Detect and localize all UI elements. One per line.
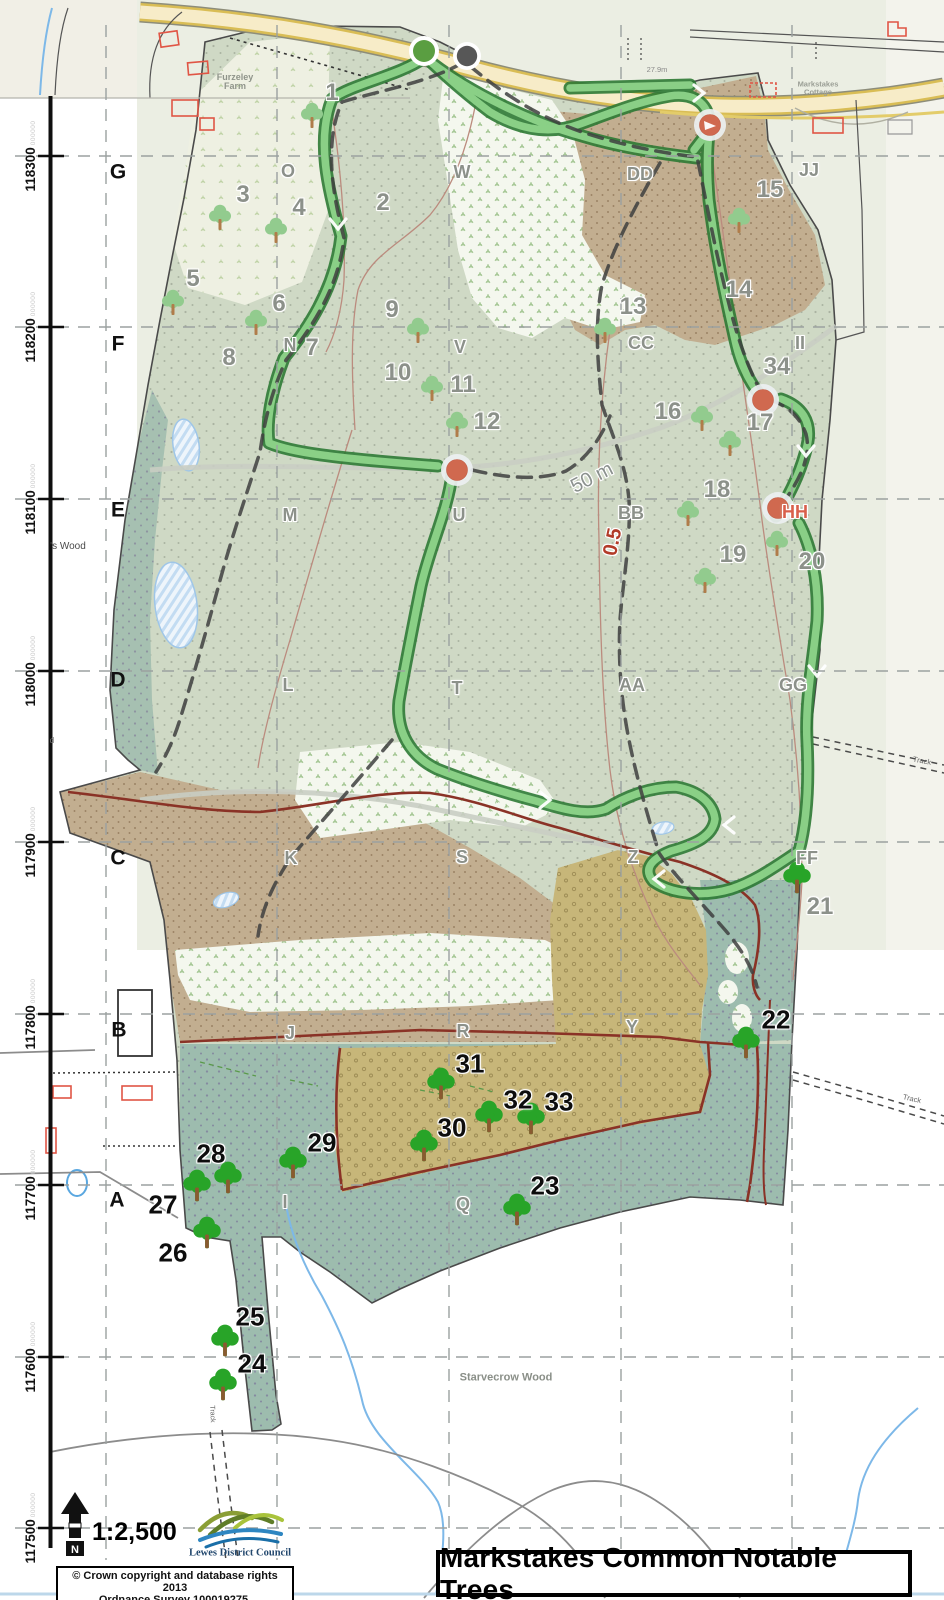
tree-number-6: 6 — [272, 292, 285, 316]
tree-number-27: 27 — [149, 1192, 178, 1219]
compartment-letter-II: II — [795, 334, 805, 352]
tree-number-15: 15 — [757, 178, 784, 202]
axis-label: 117900000000 — [22, 806, 40, 877]
compartment-letter-O: O — [281, 162, 295, 180]
tree-number-16: 16 — [655, 400, 682, 424]
tree-number-8: 8 — [222, 346, 235, 370]
map-title-text: Markstakes Common Notable Trees — [440, 1542, 908, 1600]
compartment-letter-V: V — [454, 338, 466, 356]
compartment-letter-GG: GG — [779, 676, 807, 694]
tree-number-26: 26 — [159, 1240, 188, 1267]
compartment-letter-K: K — [285, 849, 298, 867]
tree-number-31: 31 — [456, 1051, 485, 1078]
tree-number-34: 34 — [764, 355, 791, 379]
tree-number-12: 12 — [474, 410, 501, 434]
tree-number-10: 10 — [385, 361, 412, 385]
waypoint-marker — [694, 109, 726, 141]
axis-label: 118300000000 — [22, 120, 40, 191]
axis-label: 117600000000 — [22, 1321, 40, 1392]
tree-number-14: 14 — [726, 278, 753, 302]
svg-text:N: N — [71, 1544, 79, 1556]
tree-number-24: 24 — [238, 1351, 267, 1378]
compartment-letter-U: U — [453, 506, 466, 524]
map-title: Markstakes Common Notable Trees — [436, 1550, 912, 1597]
place-label-furzeley: FurzeleyFarm — [217, 73, 254, 91]
tree-number-1: 1 — [325, 81, 338, 105]
axis-label: 118000000000 — [22, 635, 40, 706]
compartment-letter-S: S — [456, 848, 468, 866]
compartment-letter-M: M — [283, 506, 298, 524]
tree-number-23: 23 — [531, 1173, 560, 1200]
tree-number-3: 3 — [236, 183, 249, 207]
tree-number-19: 19 — [720, 543, 747, 567]
compartment-letter-Z: Z — [628, 848, 639, 866]
compartment-letter-CC: CC — [628, 334, 654, 352]
compartment-letter-HH: HH — [782, 503, 808, 521]
compartment-letter-R: R — [457, 1022, 470, 1040]
axis-label: 118100000000 — [22, 463, 40, 534]
grid-letter-A: A — [109, 1189, 124, 1210]
place-label-track: Track — [208, 1405, 216, 1422]
compartment-letter-N: N — [284, 336, 297, 354]
place-label-d: d — [50, 737, 54, 745]
compartment-letter-FF: FF — [796, 849, 818, 867]
council-logo-label: Lewes District Council — [189, 1548, 291, 1559]
grid-letter-C: C — [110, 847, 125, 868]
car-park-marker — [453, 42, 481, 70]
tree-number-29: 29 — [308, 1130, 337, 1157]
tree-number-28: 28 — [197, 1141, 226, 1168]
compartment-letter-BB: BB — [618, 504, 644, 522]
compartment-letter-AA: AA — [619, 676, 645, 694]
compartment-letter-Y: Y — [626, 1018, 638, 1036]
tree-number-13: 13 — [620, 295, 647, 319]
axis-label: 117800000000 — [22, 978, 40, 1049]
trail-start-marker — [409, 36, 439, 66]
grid-letter-G: G — [110, 161, 126, 182]
scale-label: 1:2,500 — [92, 1518, 177, 1547]
grid-letter-E: E — [111, 499, 125, 520]
tree-number-20: 20 — [799, 550, 826, 574]
grid-letter-F: F — [112, 333, 125, 354]
map-sheet: N 11830000000011820000000011810000000011… — [0, 0, 944, 1600]
axis-label: 118200000000 — [22, 291, 40, 362]
compartment-letter-L: L — [283, 676, 294, 694]
compartment-letter-W: W — [454, 163, 471, 181]
copyright-box: © Crown copyright and database rights 20… — [56, 1566, 294, 1600]
tree-number-11: 11 — [450, 373, 475, 397]
axis-label: 117700000000 — [22, 1149, 40, 1220]
compartment-letter-I: I — [282, 1193, 287, 1211]
tree-number-32: 32 — [504, 1087, 533, 1114]
copyright-line-1: © Crown copyright and database rights 20… — [61, 1570, 289, 1594]
tree-number-17: 17 — [747, 411, 774, 435]
tree-number-18: 18 — [704, 478, 731, 502]
place-label--s-wood: 's Wood — [50, 542, 86, 552]
tree-number-4: 4 — [292, 196, 305, 220]
tree-number-9: 9 — [385, 298, 398, 322]
axis-label: 117500000000 — [22, 1492, 40, 1563]
place-label-markstakes: MarkstakesCottage — [798, 80, 839, 95]
grid-letter-D: D — [110, 669, 125, 690]
waypoint-marker — [441, 454, 473, 486]
compartment-letter-DD: DD — [627, 165, 653, 183]
terrain-map: N — [0, 0, 944, 1600]
compartment-letter-Q: Q — [456, 1195, 470, 1213]
compartment-letter-JJ: JJ — [799, 161, 819, 179]
tree-number-30: 30 — [438, 1115, 467, 1142]
tree-number-22: 22 — [762, 1007, 791, 1034]
place-label-27-9m: 27.9m — [647, 66, 668, 74]
place-label-starvecrow-wood: Starvecrow Wood — [460, 1372, 553, 1383]
tree-number-2: 2 — [376, 191, 389, 215]
tree-number-25: 25 — [236, 1304, 265, 1331]
tree-number-33: 33 — [545, 1089, 574, 1116]
compartment-letter-J: J — [285, 1024, 295, 1042]
compartment-letter-T: T — [452, 679, 463, 697]
grid-letter-B: B — [111, 1019, 126, 1040]
tree-number-21: 21 — [807, 895, 834, 919]
tree-number-5: 5 — [186, 267, 199, 291]
copyright-line-2: Ordnance Survey 100019275. — [61, 1594, 289, 1600]
tree-number-7: 7 — [305, 336, 318, 360]
